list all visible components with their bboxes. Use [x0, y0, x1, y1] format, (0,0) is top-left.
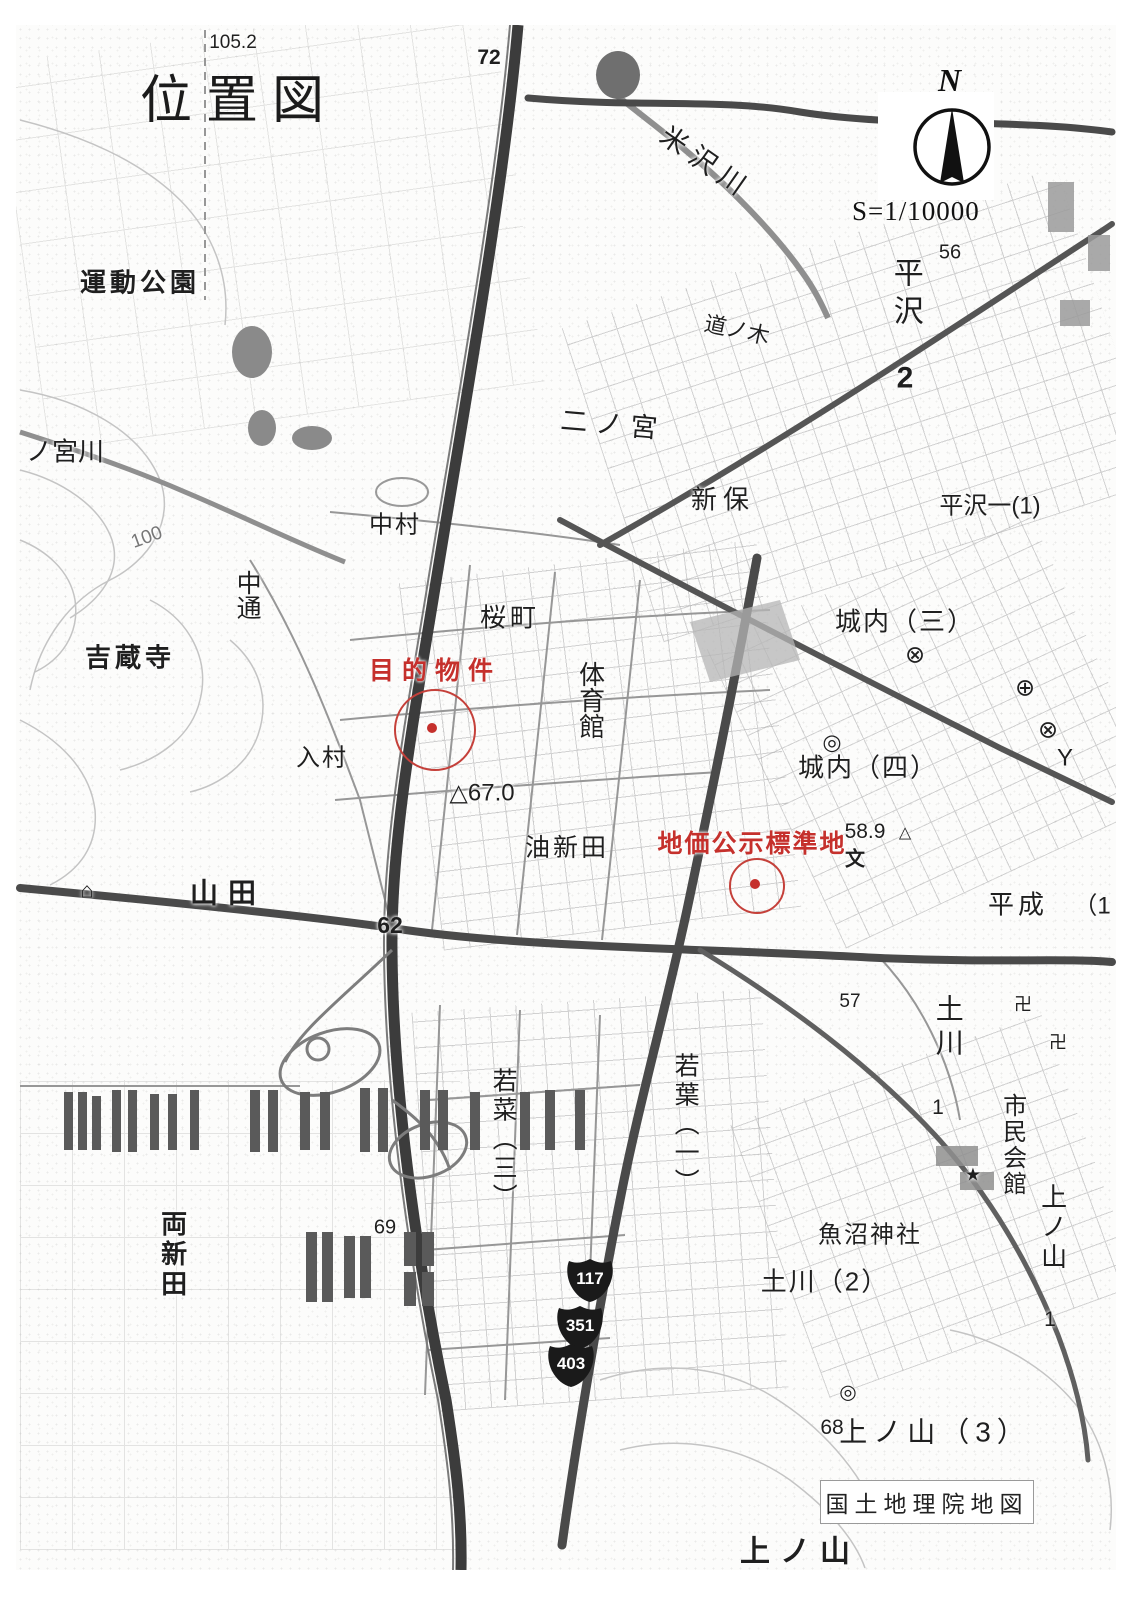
margin-bottom: [0, 1570, 1132, 1600]
compass-icon: [902, 95, 1002, 195]
page-title: 位置図: [140, 58, 338, 133]
margin-left: [0, 0, 16, 1600]
margin-right: [1116, 0, 1132, 1600]
compass-north-label: N: [938, 62, 961, 99]
scale-label: S=1/10000: [852, 196, 980, 227]
margin-top: [0, 0, 1132, 25]
credit-box: 国土地理院地図: [820, 1480, 1034, 1524]
credit-label: 国土地理院地図: [826, 1485, 1029, 1519]
location-map-page: 105.272運動公園米沢川道ノ木平沢256二ノ宮新保平沢一(1)中村中通ノ宮川…: [0, 0, 1132, 1600]
route-shield-403: 403: [546, 1342, 596, 1388]
route-shields-layer: 117351403: [0, 0, 1132, 1600]
route-shield-117: 117: [565, 1257, 615, 1303]
